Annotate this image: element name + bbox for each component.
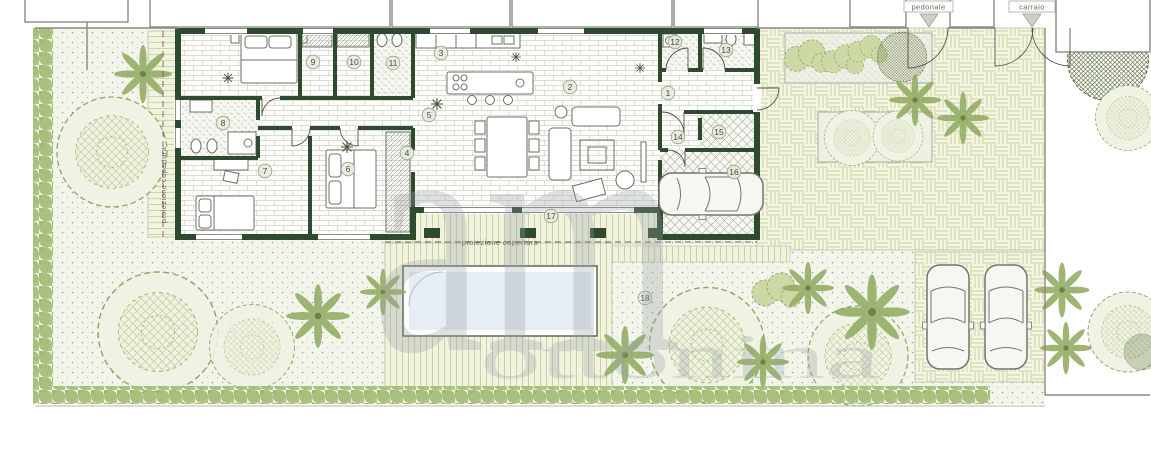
arrow-down-icon	[1023, 14, 1041, 27]
site-plan-drawing: pedonale carraio proiezione copertura pr…	[0, 0, 1151, 452]
svg-text:15: 15	[714, 127, 724, 137]
svg-text:10: 10	[349, 57, 359, 67]
parking-car-icon	[923, 265, 974, 369]
svg-text:12: 12	[670, 37, 680, 47]
tree-icon	[825, 111, 880, 166]
tree-icon	[57, 97, 167, 207]
sink	[190, 100, 212, 112]
room-number-badge: 9	[306, 55, 320, 69]
room-number-badge: 7	[258, 164, 272, 178]
tree-icon	[98, 272, 218, 392]
pedestrian-gate-label: pedonale	[911, 3, 945, 12]
toilet	[377, 34, 387, 47]
tree-icon	[210, 305, 295, 390]
svg-text:16: 16	[729, 167, 739, 177]
svg-text:8: 8	[221, 118, 226, 128]
svg-text:7: 7	[263, 166, 268, 176]
bidet	[207, 139, 217, 153]
room-number-badge: 8	[216, 116, 230, 130]
bidet	[392, 34, 402, 47]
room-number-badge: 16	[727, 165, 741, 179]
roof-projection-label-vertical: proiezione copertura	[159, 146, 168, 223]
room-number-badge: 10	[347, 55, 361, 69]
driveway-gate-label: carraio	[1019, 3, 1045, 12]
palm-tree-icon	[782, 262, 834, 314]
palm-tree-icon	[937, 92, 989, 144]
svg-text:6: 6	[346, 164, 351, 174]
palm-tree-icon	[1034, 262, 1089, 317]
svg-text:9: 9	[311, 57, 316, 67]
toilet	[191, 139, 201, 153]
floor-plan-page: pedonale carraio proiezione copertura pr…	[0, 0, 1151, 452]
room-number-badge: 15	[712, 125, 726, 139]
wardrobe	[302, 33, 332, 47]
neighbor-trees	[1068, 19, 1151, 372]
palm-tree-icon	[889, 74, 941, 126]
palm-tree-icon	[286, 284, 350, 348]
chair	[223, 171, 239, 184]
tree-icon	[877, 32, 927, 82]
gate-label-pedonale: pedonale	[904, 1, 953, 27]
svg-text:13: 13	[721, 45, 731, 55]
gate-label-carraio: carraio	[1009, 1, 1055, 27]
room-number-badge: 6	[341, 162, 355, 176]
wardrobe	[337, 33, 369, 47]
plant-icon	[223, 73, 234, 84]
planter-box-north	[784, 32, 932, 83]
room-number-badge: 13	[719, 43, 733, 57]
watermark-name: ottonina	[480, 321, 880, 392]
parking-car-icon	[981, 265, 1032, 369]
palm-tree-icon	[1040, 322, 1092, 374]
arrow-down-icon	[920, 14, 938, 27]
